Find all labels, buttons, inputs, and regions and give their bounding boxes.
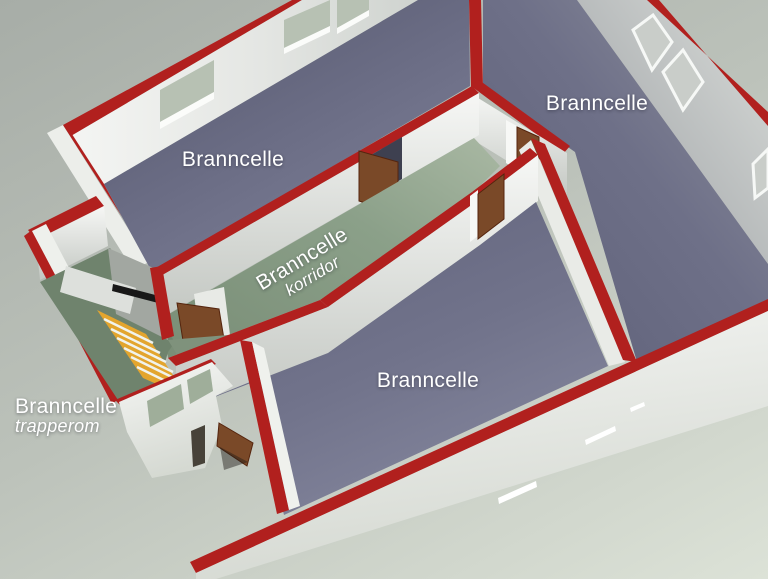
door-opening xyxy=(191,425,205,467)
room-name: Branncelle xyxy=(377,369,479,392)
room-name: Branncelle xyxy=(546,92,648,115)
floor-plan-illustration xyxy=(0,0,768,579)
room-name: Branncelle xyxy=(15,395,117,418)
door-frame xyxy=(470,190,478,242)
room-name: Branncelle xyxy=(182,148,284,171)
fire-wall-top xyxy=(469,0,483,88)
room-subname: trapperom xyxy=(15,417,117,435)
room-label-bottom: Branncelle xyxy=(377,370,479,392)
floor-plan-scene: Branncelle Branncelle Branncelle korrido… xyxy=(0,0,768,579)
room-label-top-left: Branncelle xyxy=(182,149,284,171)
room-label-top-right: Branncelle xyxy=(546,93,648,115)
room-label-stairwell: Branncelle trapperom xyxy=(15,396,117,435)
